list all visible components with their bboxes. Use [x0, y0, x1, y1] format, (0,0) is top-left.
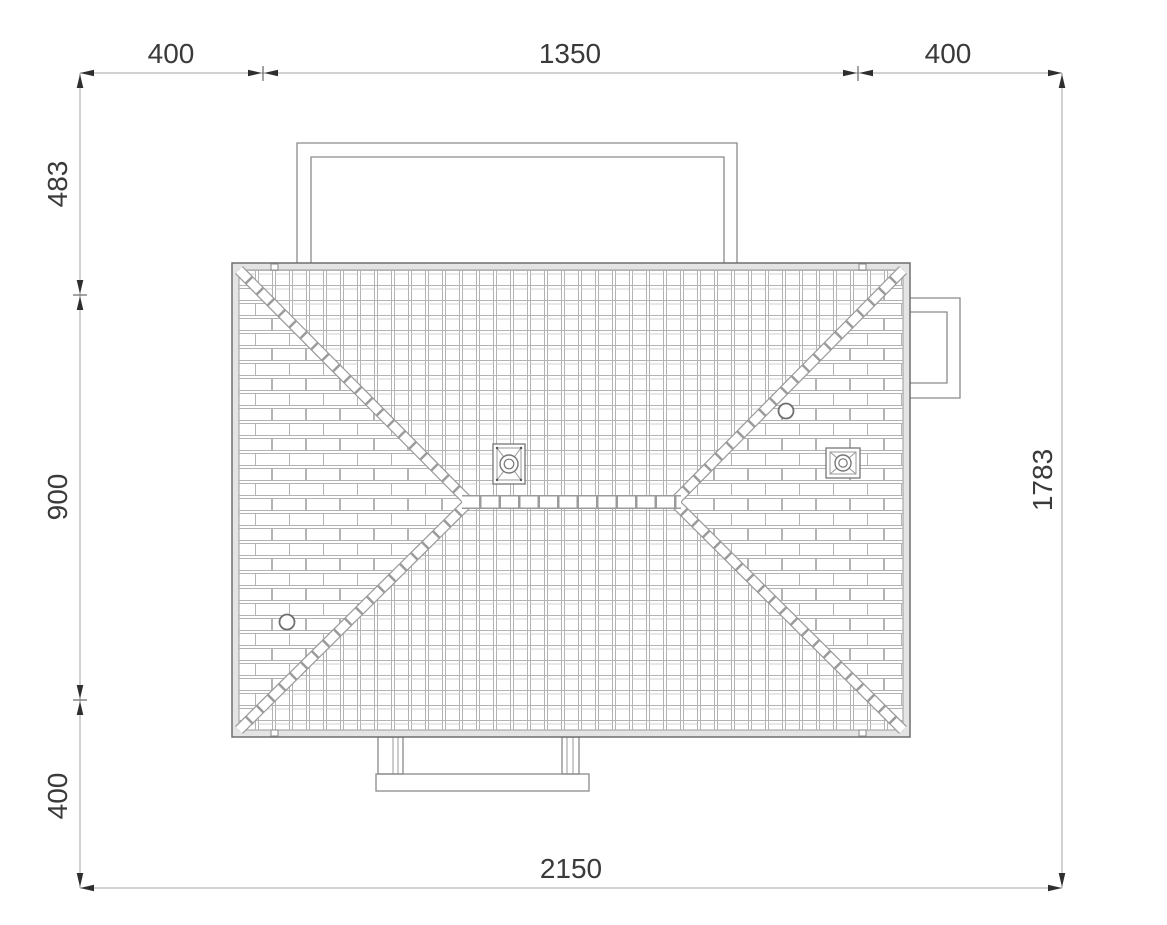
side-bay-outline: [908, 298, 960, 398]
dim-left-top-label: 483: [42, 161, 73, 208]
dim-right-total-label: 1783: [1027, 449, 1058, 511]
roof-vent-right: [779, 404, 794, 419]
entrance-porch-outline: [376, 737, 589, 791]
roof-plan-page: 400 1350 400 483 900 400 1783 2150: [0, 0, 1167, 925]
roof-plan-drawing: 400 1350 400 483 900 400 1783 2150: [0, 0, 1167, 925]
dim-bottom-total-label: 2150: [540, 853, 602, 884]
dim-left-middle-label: 900: [42, 474, 73, 521]
dim-top-left-label: 400: [148, 38, 195, 69]
dim-top-right-label: 400: [925, 38, 972, 69]
dim-top-middle-label: 1350: [539, 38, 601, 69]
dim-left-bottom-label: 400: [42, 773, 73, 820]
roof-body: [232, 263, 910, 737]
chimney-left: [493, 444, 525, 484]
chimney-right: [826, 448, 860, 478]
roof-vent-left: [280, 615, 295, 630]
upper-terrace-outline: [297, 143, 737, 265]
